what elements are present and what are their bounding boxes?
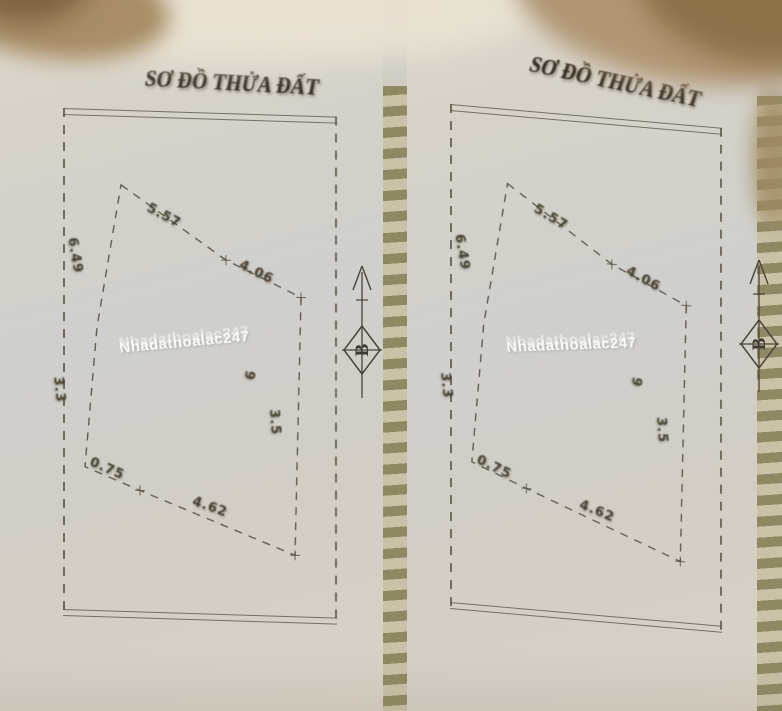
photo-of-land-parcel-diagrams: SƠ ĐỒ THỬA ĐẤT 5.574.066.493.30.754.623.… xyxy=(0,0,782,711)
north-label: B xyxy=(351,339,375,361)
north-arrow-glyph xyxy=(340,262,384,402)
dimension-label: 6.49 xyxy=(64,237,85,275)
dimension-label: 5.57 xyxy=(531,202,570,234)
dimension-label: 4.06 xyxy=(237,258,276,288)
dimension-label: 3.5 xyxy=(653,417,670,443)
parcel-map-frame: 5.574.066.493.30.754.623.59 Nhadathoalac… xyxy=(63,108,337,625)
dimension-label: 4.62 xyxy=(577,498,616,526)
north-arrow: B xyxy=(737,256,781,396)
dimension-label: 9 xyxy=(627,375,644,389)
north-arrow: B xyxy=(340,262,384,402)
north-arrow-glyph xyxy=(737,256,781,396)
striped-surface-gap xyxy=(381,86,408,711)
dimension-label: 3.3 xyxy=(50,376,68,403)
striped-surface-right-edge xyxy=(754,96,782,711)
dimension-labels-layer: 5.574.066.493.30.754.623.59 xyxy=(63,108,337,625)
dimension-label: 9 xyxy=(240,369,257,382)
dimension-label: 5.57 xyxy=(144,201,183,232)
dimension-label: 4.62 xyxy=(190,494,229,520)
page-title: SƠ ĐỒ THỬA ĐẤT xyxy=(526,52,705,113)
page-title: SƠ ĐỒ THỬA ĐẤT xyxy=(143,66,322,101)
page-right: SƠ ĐỒ THỬA ĐẤT 5.574.066.493.30.754.623.… xyxy=(407,0,757,711)
dimension-label: 0.75 xyxy=(474,453,513,483)
north-label: B xyxy=(748,333,772,355)
dimension-label: 6.49 xyxy=(451,233,472,270)
dimension-label: 3.5 xyxy=(266,409,283,436)
dimension-label: 4.06 xyxy=(624,264,663,295)
dimension-labels-layer: 5.574.066.493.30.754.623.59 xyxy=(450,104,722,633)
parcel-map-frame: 5.574.066.493.30.754.623.59 Nhadathoalac… xyxy=(450,104,722,633)
dimension-label: 3.3 xyxy=(437,372,455,398)
page-left: SƠ ĐỒ THỬA ĐẤT 5.574.066.493.30.754.623.… xyxy=(0,0,383,711)
dimension-label: 0.75 xyxy=(87,455,126,483)
